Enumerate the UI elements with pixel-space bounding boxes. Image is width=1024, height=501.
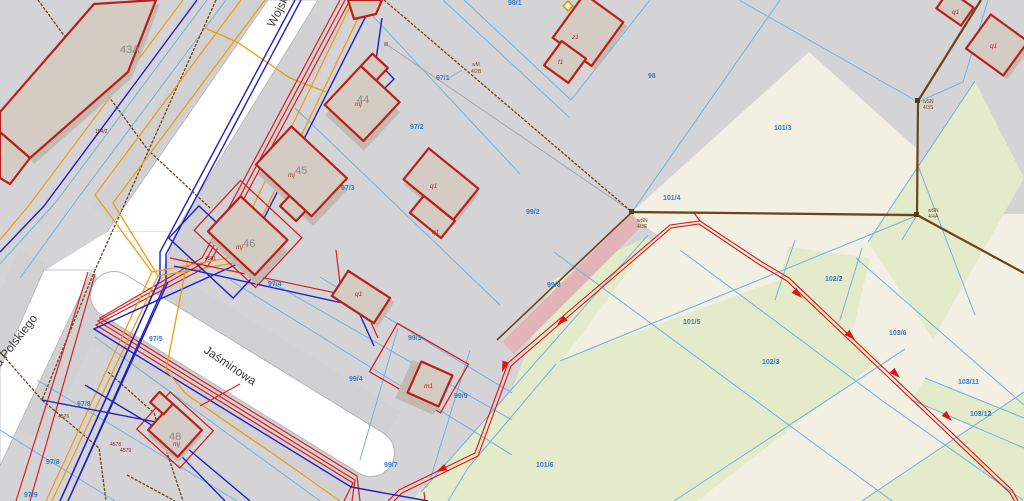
svg-text:99/4: 99/4 (349, 376, 363, 383)
svg-text:101/4: 101/4 (663, 195, 681, 202)
svg-text:q1: q1 (432, 229, 440, 236)
svg-text:q1: q1 (990, 43, 998, 50)
svg-text:97/4: 97/4 (268, 281, 282, 288)
svg-text:99/7: 99/7 (384, 462, 398, 469)
svg-text:97/9: 97/9 (24, 492, 38, 499)
svg-text:43A: 43A (120, 44, 140, 56)
svg-text:q1: q1 (430, 183, 438, 190)
svg-text:4/3S: 4/3S (923, 105, 934, 111)
svg-text:mj: mj (236, 244, 243, 251)
svg-text:98/1: 98/1 (508, 0, 522, 7)
svg-text:99/2: 99/2 (526, 209, 540, 216)
svg-text:103/11: 103/11 (958, 379, 979, 386)
svg-text:mj: mj (173, 441, 180, 448)
svg-text:98: 98 (648, 73, 656, 80)
svg-text:m1: m1 (424, 383, 433, 390)
svg-text:194/2: 194/2 (95, 129, 108, 135)
svg-text:102/3: 102/3 (762, 359, 780, 366)
svg-text:mj: mj (355, 101, 362, 108)
svg-text:q1: q1 (952, 9, 960, 16)
svg-text:97/2: 97/2 (410, 124, 424, 131)
svg-text:q1: q1 (355, 291, 363, 298)
svg-text:97/8: 97/8 (77, 401, 91, 408)
svg-text:101/6: 101/6 (536, 462, 554, 469)
svg-text:97/3: 97/3 (341, 185, 355, 192)
svg-text:99/8: 99/8 (547, 282, 561, 289)
svg-text:99/3: 99/3 (408, 335, 422, 342)
svg-text:103/12: 103/12 (970, 411, 992, 418)
svg-text:4/2B: 4/2B (471, 69, 482, 75)
svg-text:45: 45 (295, 165, 307, 177)
svg-text:f1: f1 (558, 59, 564, 66)
svg-text:99/9: 99/9 (454, 393, 468, 400)
svg-text:101/3: 101/3 (774, 125, 792, 132)
svg-text:wM: wM (472, 62, 480, 68)
svg-text:97/5: 97/5 (149, 336, 163, 343)
svg-text:4/3E: 4/3E (637, 224, 648, 230)
svg-text:4576: 4576 (58, 414, 69, 420)
svg-text:102/2: 102/2 (825, 276, 843, 283)
svg-text:103/6: 103/6 (889, 330, 907, 337)
svg-text:z1: z1 (571, 34, 579, 41)
svg-text:4581: 4581 (205, 256, 216, 262)
svg-text:97/8: 97/8 (46, 459, 60, 466)
svg-text:4/4A: 4/4A (928, 214, 939, 220)
svg-text:101/5: 101/5 (683, 319, 701, 326)
svg-text:mj: mj (288, 172, 295, 179)
svg-text:4579: 4579 (120, 448, 131, 454)
svg-text:46: 46 (243, 238, 255, 250)
svg-text:97/1: 97/1 (436, 75, 450, 82)
